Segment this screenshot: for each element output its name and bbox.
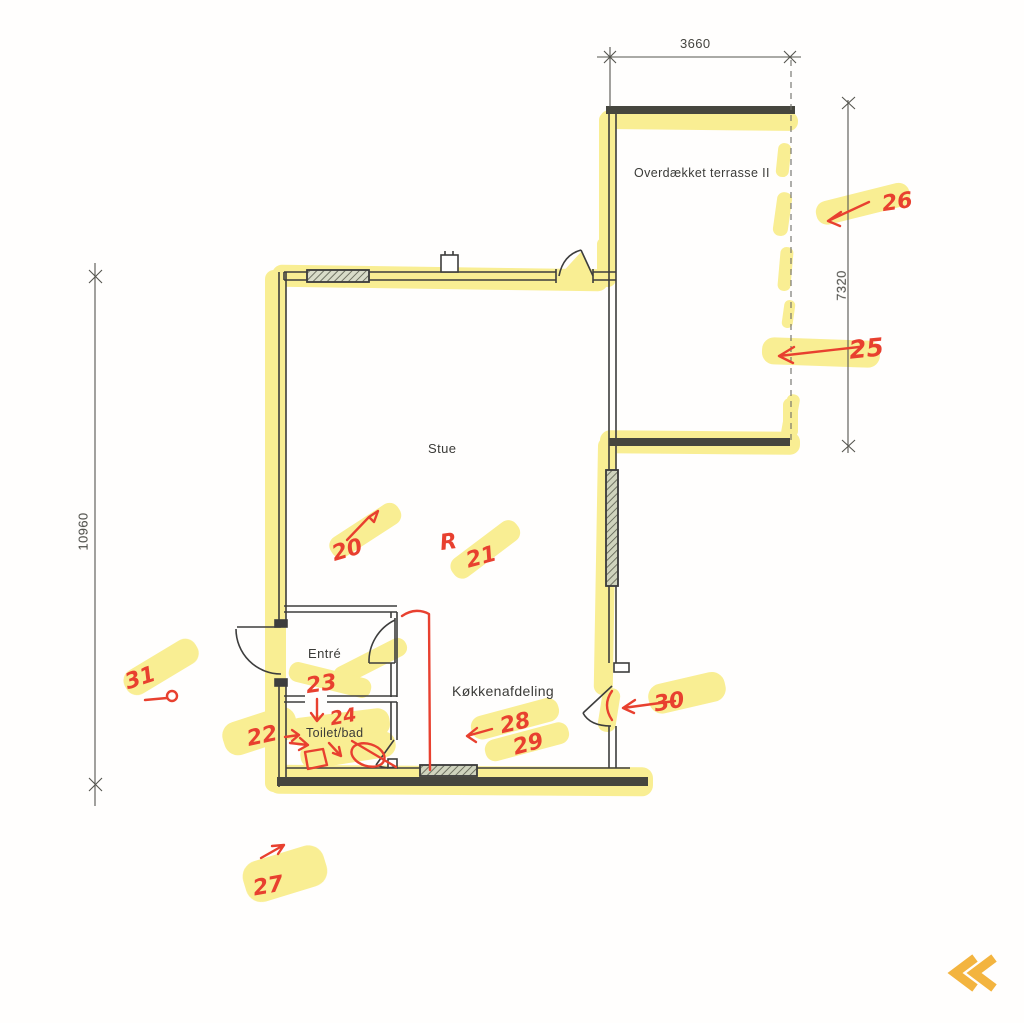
plan-drawing — [0, 0, 1024, 1023]
markup-30: 30 — [652, 688, 687, 718]
arrow-31 — [145, 698, 167, 700]
dimension-right: 7320 — [834, 270, 849, 301]
markup-27: 27 — [251, 872, 286, 902]
room-label-kitchen: Køkkenafdeling — [452, 683, 554, 699]
room-label-entre: Entré — [308, 646, 341, 661]
markup-23: 23 — [304, 670, 338, 699]
dimension-left: 10960 — [76, 512, 91, 550]
red-wall-sketch-line — [402, 611, 430, 770]
markup-26: 26 — [880, 188, 914, 217]
chevron-double-left-icon — [938, 948, 1008, 998]
markup-25: 25 — [848, 332, 886, 364]
room-label-stue: Stue — [428, 441, 456, 456]
floor-plan-scan: Stue Entré Toilet/bad Køkkenafdeling Ove… — [0, 0, 1024, 1023]
markup-21-letter: R — [438, 529, 458, 556]
arrow-31-head — [167, 691, 177, 701]
previous-image-button[interactable] — [938, 948, 1008, 998]
markup-24: 24 — [328, 704, 358, 730]
room-label-terrace: Overdækket terrasse II — [634, 166, 770, 180]
highlighter-marks — [119, 110, 912, 906]
dimension-top: 3660 — [680, 36, 711, 51]
